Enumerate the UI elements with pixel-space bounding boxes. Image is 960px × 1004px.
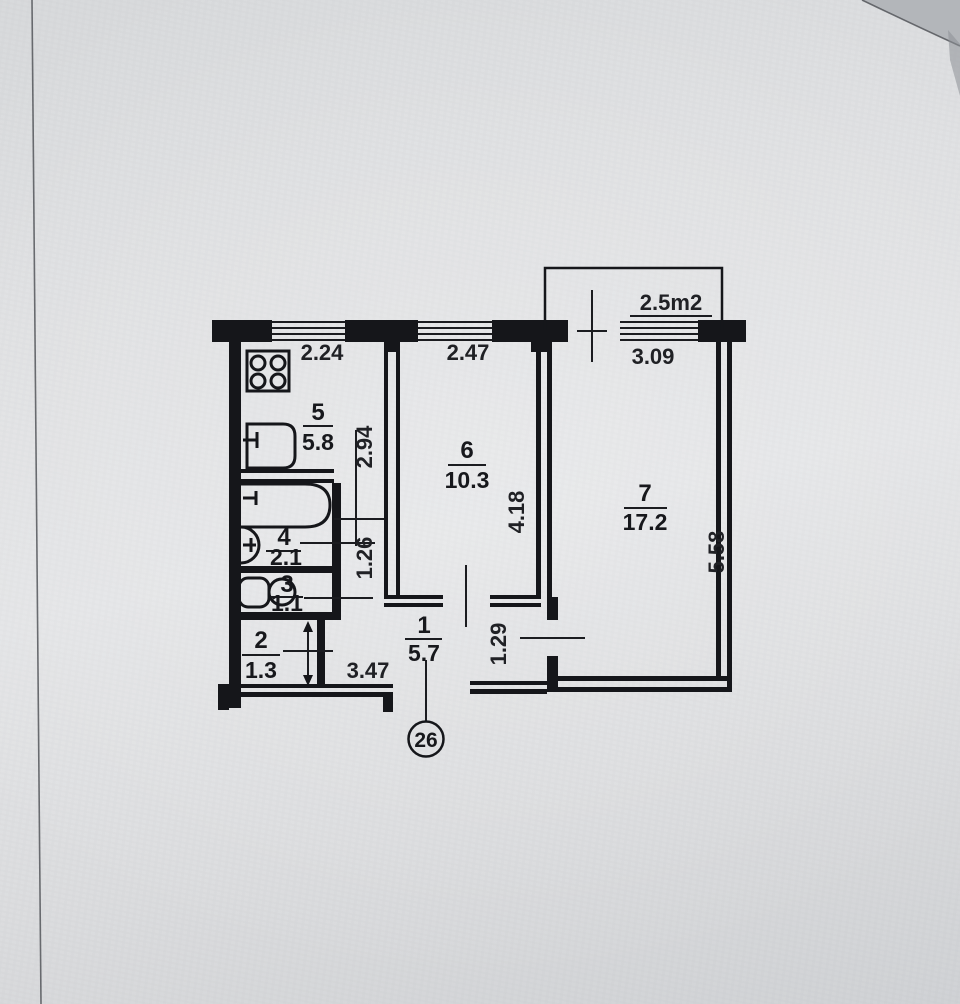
room-label-2: 2 1.3 — [242, 627, 280, 683]
apartment-number-badge: 26 — [409, 722, 444, 757]
paper-edge-left — [32, 0, 41, 1004]
room6-number: 6 — [460, 437, 473, 464]
bathtub-icon — [237, 484, 330, 527]
room5-area: 5.8 — [302, 429, 334, 455]
balcony-area-label: 2.5m2 — [640, 290, 702, 315]
apartment-number: 26 — [414, 729, 437, 752]
room-label-1: 1 5.7 — [405, 612, 442, 666]
dim-top2: 2.47 — [447, 340, 490, 365]
room-label-7: 7 17.2 — [623, 480, 668, 535]
room7-number: 7 — [638, 480, 651, 507]
dim-hall-width2: 1.29 — [486, 623, 511, 666]
window-room7-icon — [620, 322, 698, 340]
room-label-5: 5 5.8 — [302, 399, 334, 455]
wash-basin-icon — [241, 527, 259, 563]
photo-paper-edges — [32, 0, 960, 1004]
floor-plan: 2.5m2 — [0, 0, 960, 1004]
room3-area: 1.1 — [271, 590, 303, 616]
room-label-3: 3 1.1 — [271, 571, 303, 616]
room2-number: 2 — [254, 627, 267, 654]
room-label-6: 6 10.3 — [445, 437, 490, 493]
dim-hall-length: 3.47 — [347, 658, 390, 683]
room2-area: 1.3 — [245, 657, 277, 683]
window-kitchen-icon — [272, 322, 345, 340]
room1-number: 1 — [417, 612, 430, 639]
room5-number: 5 — [311, 399, 324, 426]
dim-hall-width: 1.26 — [352, 537, 377, 580]
room7-area: 17.2 — [623, 509, 668, 535]
stove-icon — [247, 351, 289, 391]
room4-area: 2.1 — [270, 544, 302, 570]
dim-top3: 3.09 — [632, 344, 675, 369]
kitchen-sink-icon — [243, 424, 295, 468]
windows — [272, 322, 698, 340]
room-label-4: 4 2.1 — [266, 524, 302, 570]
dim-kitchen-depth: 2.94 — [352, 425, 377, 469]
dim-room7-depth: 5.58 — [704, 531, 729, 574]
window-room6-icon — [418, 322, 492, 340]
dim-room6-depth: 4.18 — [504, 491, 529, 534]
dim-top1: 2.24 — [301, 340, 345, 365]
room-labels: 5 5.8 6 10.3 7 17.2 4 2.1 3 1.1 2 1.3 — [242, 399, 667, 683]
room1-area: 5.7 — [408, 640, 440, 666]
room6-area: 10.3 — [445, 467, 490, 493]
arrow-up-icon — [303, 621, 313, 632]
